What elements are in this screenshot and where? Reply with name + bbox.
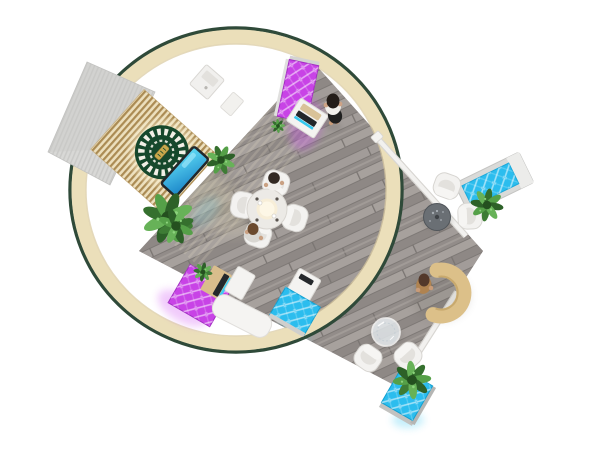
woman-hair <box>327 94 340 109</box>
receptionist-hair <box>419 274 430 287</box>
booth-render <box>0 0 600 450</box>
cup <box>272 214 276 218</box>
seated-1-hair <box>268 172 280 184</box>
cup <box>258 201 262 205</box>
reception-desk <box>411 270 471 322</box>
glass-table <box>372 318 400 346</box>
seated-2-hair <box>248 223 259 235</box>
